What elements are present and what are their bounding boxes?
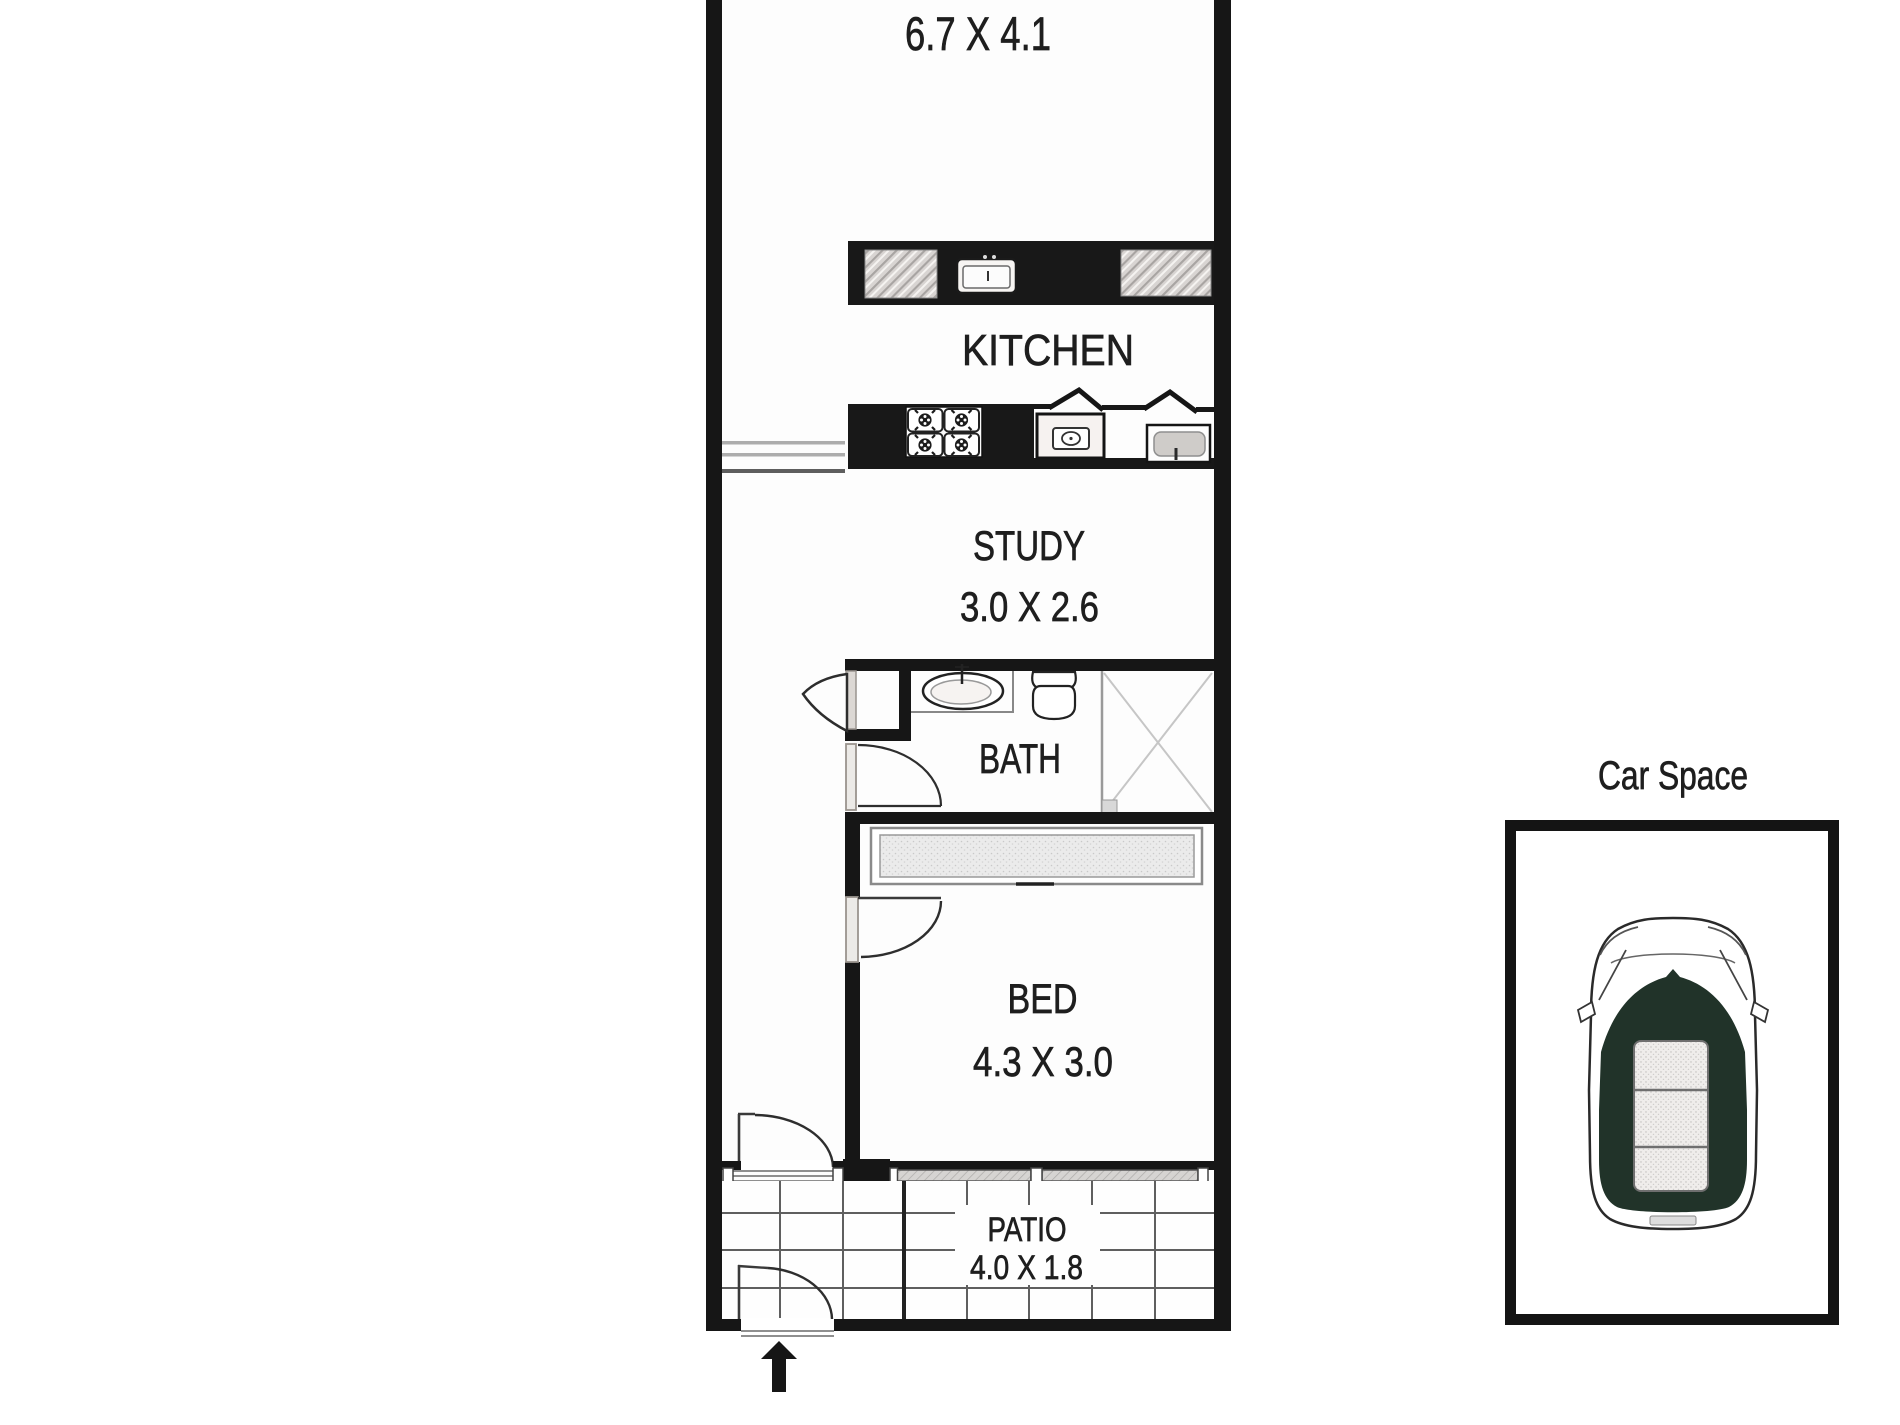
- svg-text:KITCHEN: KITCHEN: [962, 326, 1134, 375]
- svg-text:BATH: BATH: [979, 735, 1061, 782]
- svg-text:4.0 X 1.8: 4.0 X 1.8: [970, 1249, 1083, 1287]
- svg-text:Car Space: Car Space: [1598, 754, 1748, 798]
- svg-text:BED: BED: [1008, 975, 1078, 1022]
- svg-text:PATIO: PATIO: [988, 1211, 1067, 1249]
- svg-text:6.7 X 4.1: 6.7 X 4.1: [905, 7, 1051, 60]
- svg-text:STUDY: STUDY: [973, 522, 1085, 569]
- svg-text:4.3 X 3.0: 4.3 X 3.0: [973, 1038, 1113, 1085]
- svg-text:3.0 X 2.6: 3.0 X 2.6: [960, 583, 1099, 630]
